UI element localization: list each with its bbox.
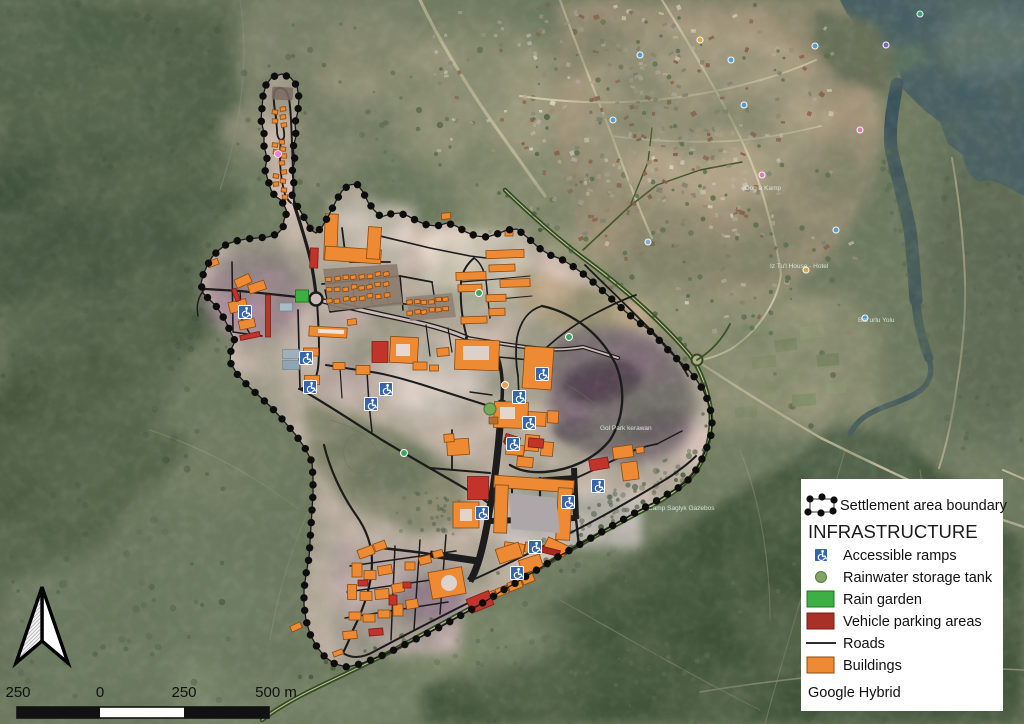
svg-text:250: 250: [5, 684, 30, 701]
svg-text:Rainwater storage tank: Rainwater storage tank: [843, 570, 993, 586]
svg-text:INFRASTRUCTURE: INFRASTRUCTURE: [808, 521, 978, 542]
svg-text:Dog a Kamp: Dog a Kamp: [745, 185, 782, 192]
svg-text:Settlement area boundary: Settlement area boundary: [840, 498, 1008, 514]
svg-text:Vehicle parking areas: Vehicle parking areas: [843, 614, 982, 630]
svg-text:500 m: 500 m: [255, 684, 297, 701]
svg-text:Google Hybrid: Google Hybrid: [808, 685, 901, 701]
svg-text:Roads: Roads: [843, 636, 885, 652]
svg-text:Camp Saglyk Gazebos: Camp Saglyk Gazebos: [648, 505, 715, 512]
svg-text:250: 250: [171, 684, 196, 701]
svg-text:Bat urlu Yolu: Bat urlu Yolu: [858, 317, 895, 324]
svg-text:0: 0: [96, 684, 104, 701]
svg-text:Rain garden: Rain garden: [843, 592, 922, 608]
svg-text:Buildings: Buildings: [843, 658, 902, 674]
svg-text:Iz Tu'l House - Hotel: Iz Tu'l House - Hotel: [770, 263, 829, 270]
svg-text:Accessible ramps: Accessible ramps: [843, 548, 957, 564]
svg-text:Gol Park kerawan: Gol Park kerawan: [600, 425, 652, 432]
